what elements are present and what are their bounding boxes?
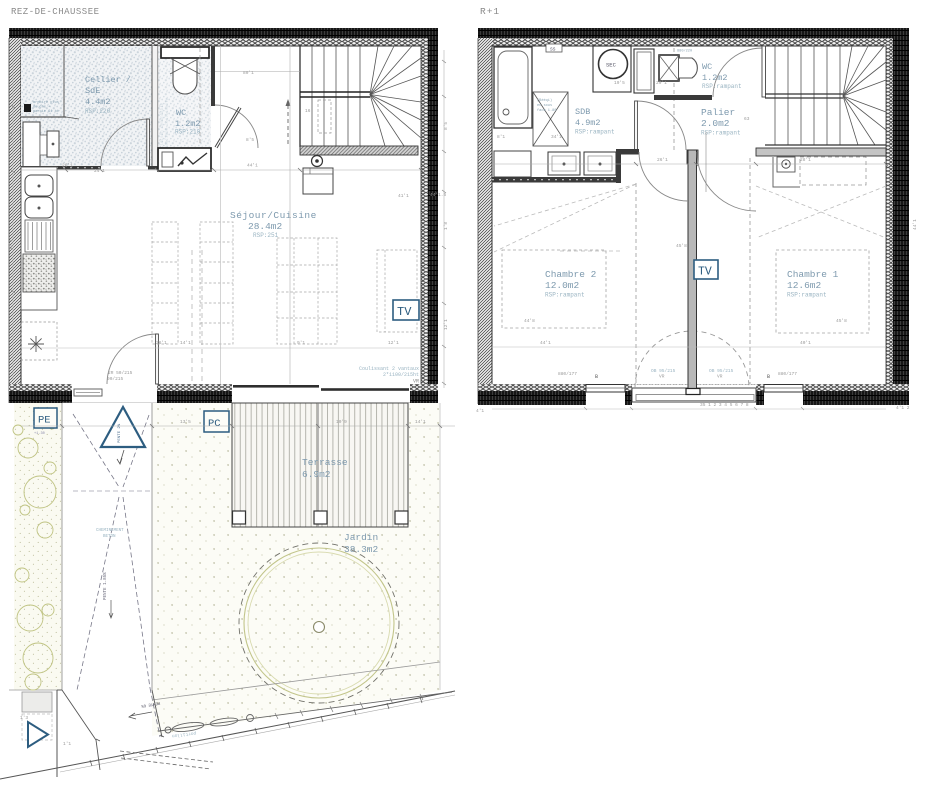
- svg-text:WC: WC: [176, 108, 186, 118]
- svg-text:80'1: 80'1: [243, 70, 254, 76]
- svg-text:douche +: douche +: [33, 105, 50, 110]
- svg-text:880/220: 880/220: [677, 49, 692, 54]
- svg-text:6.9m2: 6.9m2: [302, 469, 331, 480]
- svg-text:44'1: 44'1: [247, 163, 258, 169]
- svg-text:12'1: 12'1: [388, 340, 399, 346]
- svg-text:RSP:251: RSP:251: [253, 232, 279, 239]
- svg-text:1'1: 1'1: [63, 741, 71, 747]
- svg-text:8'5: 8'5: [246, 137, 254, 143]
- svg-text:1.2m2: 1.2m2: [702, 73, 728, 83]
- svg-text:Palier: Palier: [701, 107, 735, 118]
- svg-text:VR: VR: [413, 379, 419, 385]
- svg-text:(Bééqi): (Bééqi): [537, 98, 552, 103]
- svg-text:44'1: 44'1: [912, 219, 918, 230]
- svg-text:Chambre 2: Chambre 2: [545, 269, 597, 280]
- svg-text:12'1: 12'1: [8, 239, 14, 250]
- svg-text:8'2: 8'2: [8, 132, 14, 140]
- svg-text:26'1: 26'1: [156, 340, 167, 346]
- svg-text:880/177: 880/177: [778, 371, 797, 377]
- svg-text:40'1: 40'1: [800, 340, 811, 346]
- svg-text:OB 95/215: OB 95/215: [709, 368, 734, 374]
- svg-text:paroie 61 ht: paroie 61 ht: [33, 109, 59, 114]
- svg-text:1'3: 1'3: [20, 715, 28, 721]
- svg-text:44'1: 44'1: [540, 340, 551, 346]
- svg-text:26'1: 26'1: [62, 163, 73, 169]
- svg-text:90/215: 90/215: [107, 376, 124, 382]
- svg-text:TV: TV: [397, 305, 412, 319]
- svg-text:14'1: 14'1: [415, 419, 426, 425]
- svg-text:VR: VR: [717, 374, 723, 380]
- svg-text:1.2m2: 1.2m2: [175, 119, 201, 129]
- svg-text:12.6m2: 12.6m2: [787, 280, 822, 291]
- svg-text:RSP:rampant: RSP:rampant: [702, 83, 742, 90]
- svg-text:RSP:210: RSP:210: [175, 129, 201, 136]
- svg-text:RSP:220: RSP:220: [85, 108, 111, 115]
- svg-text:9'1: 9'1: [297, 340, 305, 346]
- svg-text:8'1: 8'1: [497, 134, 505, 140]
- svg-text:TV: TV: [698, 266, 712, 279]
- svg-text:13'5: 13'5: [180, 419, 191, 425]
- svg-text:45'8: 45'8: [676, 243, 687, 249]
- svg-text:SEC: SEC: [606, 62, 617, 69]
- svg-text:+1.30: +1.30: [34, 432, 45, 436]
- svg-text:16: 16: [305, 108, 311, 114]
- svg-text:R+1: R+1: [480, 6, 500, 17]
- svg-text:RSP:rampant: RSP:rampant: [787, 292, 827, 299]
- svg-text:face 1.80: face 1.80: [537, 108, 556, 113]
- svg-text:CHEMINEMENT: CHEMINEMENT: [96, 529, 124, 533]
- svg-text:RSP:rampant: RSP:rampant: [545, 292, 585, 299]
- svg-text:en sous: en sous: [537, 104, 552, 108]
- svg-text:8'5: 8'5: [443, 122, 449, 130]
- svg-text:880/177: 880/177: [558, 371, 577, 377]
- svg-text:34'1: 34'1: [551, 134, 562, 140]
- svg-text:RSP:rampant: RSP:rampant: [575, 129, 615, 136]
- svg-text:24'1: 24'1: [94, 168, 105, 174]
- svg-text:4'1: 4'1: [476, 408, 484, 414]
- svg-text:2.0m2: 2.0m2: [701, 118, 730, 129]
- svg-text:SDB: SDB: [575, 107, 590, 117]
- svg-text:26'1: 26'1: [657, 157, 668, 163]
- svg-text:PE: PE: [38, 415, 51, 427]
- svg-text:OB 95/215: OB 95/215: [651, 368, 676, 374]
- svg-text:armoire plus: armoire plus: [33, 100, 59, 105]
- svg-text:63: 63: [744, 116, 750, 122]
- svg-text:4'1 2: 4'1 2: [896, 405, 910, 411]
- svg-text:2*1100/215ht: 2*1100/215ht: [383, 372, 419, 378]
- svg-text:PENTE 1.85%: PENTE 1.85%: [104, 572, 108, 600]
- svg-text:Terrasse: Terrasse: [302, 457, 348, 468]
- svg-text:4.9m2: 4.9m2: [575, 118, 601, 128]
- svg-text:12.0m2: 12.0m2: [545, 280, 580, 291]
- svg-text:RSP:rampant: RSP:rampant: [701, 130, 741, 137]
- svg-text:B: B: [595, 374, 598, 380]
- svg-text:PC: PC: [208, 418, 221, 430]
- svg-text:2R 50/215: 2R 50/215: [108, 370, 133, 376]
- svg-text:19'5: 19'5: [614, 80, 625, 86]
- svg-text:45'8: 45'8: [836, 318, 847, 324]
- svg-text:12'1: 12'1: [443, 319, 449, 330]
- svg-text:44'1.5: 44'1.5: [430, 192, 447, 198]
- svg-text:REZ-DE-CHAUSSEE: REZ-DE-CHAUSSEE: [11, 7, 100, 17]
- svg-text:Cellier /: Cellier /: [85, 75, 131, 85]
- svg-text:Séjour/Cuisine: Séjour/Cuisine: [230, 210, 317, 221]
- svg-text:Chambre 1: Chambre 1: [787, 269, 839, 280]
- svg-text:29'1: 29'1: [656, 80, 667, 86]
- svg-text:10'9: 10'9: [336, 419, 347, 425]
- svg-text:38.3m2: 38.3m2: [344, 544, 379, 555]
- svg-text:4.4m2: 4.4m2: [85, 97, 111, 107]
- svg-text:WC: WC: [702, 62, 712, 72]
- svg-text:BETON: BETON: [103, 535, 116, 539]
- svg-text:44'8: 44'8: [524, 318, 535, 324]
- svg-text:35 1 2 3 4 5 6 7 8: 35 1 2 3 4 5 6 7 8: [700, 402, 749, 408]
- svg-text:28'1: 28'1: [800, 157, 811, 163]
- svg-text:14'1: 14'1: [180, 340, 191, 346]
- svg-text:SS: SS: [550, 47, 556, 53]
- svg-text:VR: VR: [659, 374, 665, 380]
- svg-text:B: B: [767, 374, 770, 380]
- svg-text:SdE: SdE: [85, 86, 100, 96]
- svg-text:28.4m2: 28.4m2: [248, 221, 283, 232]
- svg-text:41'1: 41'1: [398, 193, 409, 199]
- svg-text:1'8: 1'8: [443, 222, 449, 230]
- svg-text:Jardin: Jardin: [344, 532, 378, 543]
